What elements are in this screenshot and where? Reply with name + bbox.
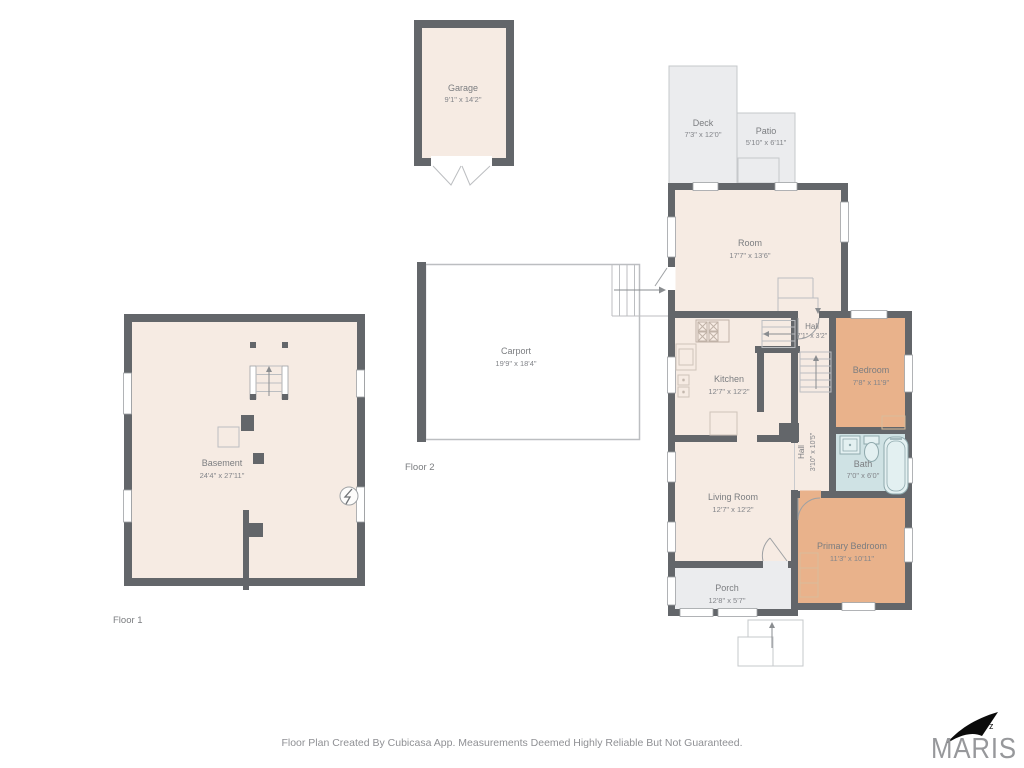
primary-bedroom-dims: 11'3" x 10'11" — [830, 554, 875, 563]
electrical-panel-icon — [340, 487, 358, 505]
basement-post — [282, 342, 288, 348]
floor-plan-canvas: Deck 7'3" x 12'0" Patio 5'10" x 6'11" Ga… — [0, 0, 1024, 768]
disclaimer-text: Floor Plan Created By Cubicasa App. Meas… — [281, 737, 742, 749]
bedroom-dims: 7'8" x 11'9" — [853, 378, 890, 387]
bath-label: Bath — [854, 459, 873, 469]
carport-label: Carport — [501, 346, 532, 356]
hall-lower-label: Hall — [797, 445, 806, 459]
basement-post — [250, 342, 256, 348]
porch-steps — [738, 620, 803, 666]
floor2-house: Room 17'7" x 13'6" Hall 7'1" x 3'2" Bedr… — [655, 183, 913, 667]
area-deck: Deck 7'3" x 12'0" — [669, 66, 737, 184]
basement-label: Basement — [202, 458, 243, 468]
maris-logo: z MARIS — [931, 712, 1017, 765]
basement-dims: 24'4" x 27'11" — [200, 471, 245, 480]
compass-z-mark: z — [989, 721, 994, 731]
floor2-label: Floor 2 — [405, 462, 435, 473]
basement-column — [253, 453, 264, 464]
carport-dims: 19'9" x 18'4" — [495, 359, 536, 368]
hall-lower-dims: 3'10" x 10'5" — [810, 432, 817, 471]
bedroom-label: Bedroom — [853, 365, 890, 375]
kitchen-dims: 12'7" x 12'2" — [708, 387, 749, 396]
garage-label: Garage — [448, 83, 478, 93]
room-garage: Garage 9'1" x 14'2" — [418, 24, 510, 185]
kitchen-label: Kitchen — [714, 374, 744, 384]
porch-label: Porch — [715, 583, 739, 593]
bath-dims: 7'0" x 6'0" — [847, 471, 880, 480]
living-room-dims: 12'7" x 12'2" — [712, 505, 753, 514]
deck-dims: 7'3" x 12'0" — [685, 130, 722, 139]
floor1-label: Floor 1 — [113, 615, 143, 626]
maris-logo-text: MARIS — [931, 733, 1017, 765]
deck-label: Deck — [693, 118, 714, 128]
floor-plan-svg: Deck 7'3" x 12'0" Patio 5'10" x 6'11" Ga… — [0, 0, 1024, 768]
patio-label: Patio — [756, 126, 777, 136]
door-entry-room — [655, 268, 667, 286]
area-carport: Carport 19'9" x 18'4" — [417, 262, 668, 442]
hall-upper-dims: 7'1" x 3'2" — [797, 333, 828, 340]
basement-stairs — [250, 366, 288, 400]
area-patio: Patio 5'10" x 6'11" — [737, 113, 795, 184]
living-room-label: Living Room — [708, 492, 758, 502]
patio-dims: 5'10" x 6'11" — [746, 138, 787, 147]
basement-column — [241, 415, 254, 431]
primary-bedroom-label: Primary Bedroom — [817, 541, 887, 551]
floor1-basement: Basement 24'4" x 27'11" — [124, 318, 365, 590]
porch-dims: 12'8" x 5'7" — [709, 596, 746, 605]
hall-upper-label: Hall — [805, 322, 819, 331]
room-dims: 17'7" x 13'6" — [729, 251, 770, 260]
garage-dims: 9'1" x 14'2" — [445, 95, 482, 104]
room-label: Room — [738, 238, 762, 248]
